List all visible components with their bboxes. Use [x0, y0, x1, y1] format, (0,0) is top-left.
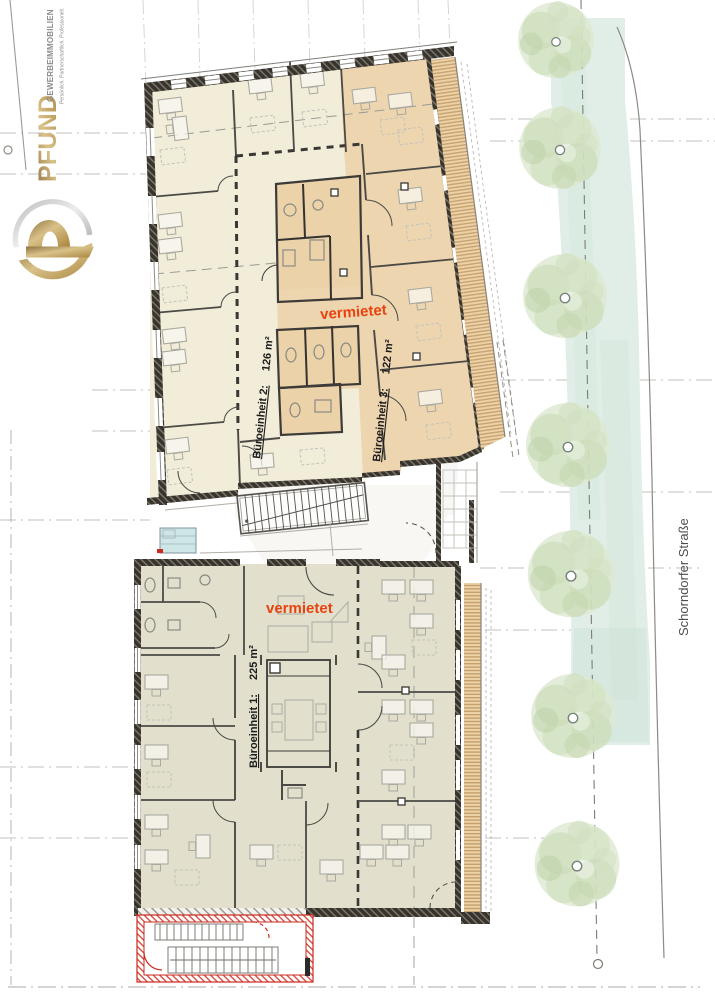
svg-text:225 m²: 225 m² [248, 645, 260, 680]
svg-text:PFUND: PFUND [34, 95, 62, 182]
svg-text:GEWERBEIMMOBILIEN: GEWERBEIMMOBILIEN [46, 9, 55, 102]
svg-text:Persönlich. Partnerschaftlich.: Persönlich. Partnerschaftlich. Professio… [60, 8, 66, 104]
svg-text:Schorndorfer Straße: Schorndorfer Straße [676, 518, 691, 636]
svg-text:vermietet: vermietet [266, 600, 333, 617]
svg-text:Büroeinheit 1:: Büroeinheit 1: [248, 694, 260, 768]
